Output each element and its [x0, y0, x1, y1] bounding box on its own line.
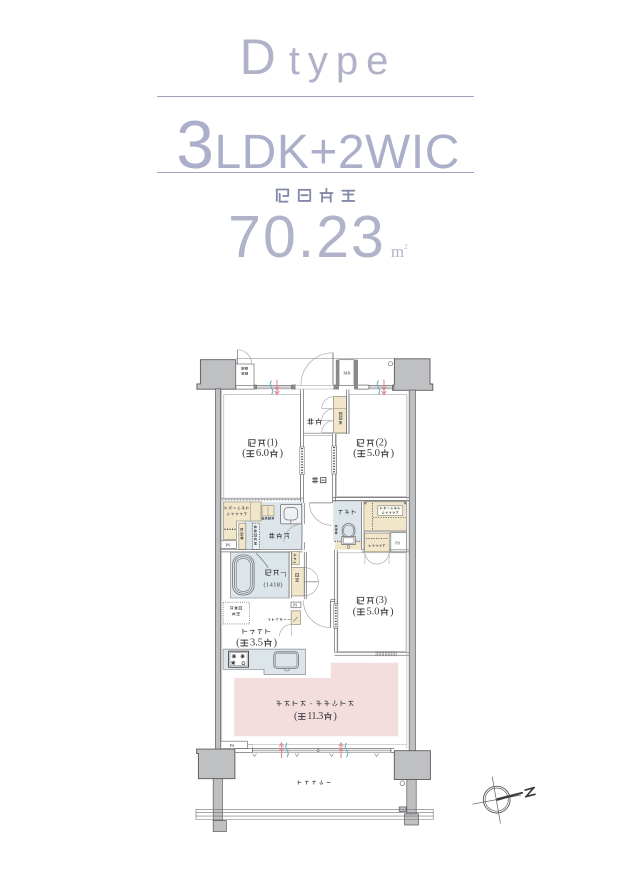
svg-text:6.0: 6.0	[256, 447, 269, 459]
svg-text:3.5: 3.5	[250, 637, 263, 649]
svg-text:): )	[280, 447, 284, 459]
svg-text:PS: PS	[395, 540, 400, 545]
svg-text:PS: PS	[230, 743, 235, 748]
svg-text:): )	[390, 605, 394, 617]
svg-text:5.0: 5.0	[367, 447, 380, 459]
svg-text:PS: PS	[226, 543, 232, 548]
svg-text:(1418): (1418)	[264, 582, 283, 589]
svg-text:): )	[274, 637, 278, 649]
svg-text:PS: PS	[293, 604, 297, 608]
svg-text:MB: MB	[343, 371, 350, 376]
svg-text:(: (	[294, 711, 298, 722]
svg-text:(: (	[236, 637, 240, 649]
svg-text:): )	[391, 447, 395, 459]
svg-text:11.3: 11.3	[307, 711, 323, 722]
svg-text:): )	[333, 711, 336, 722]
svg-text:(: (	[353, 605, 357, 617]
svg-text:(: (	[353, 447, 357, 459]
svg-text:(: (	[242, 447, 246, 459]
svg-text:5.0: 5.0	[366, 605, 379, 617]
